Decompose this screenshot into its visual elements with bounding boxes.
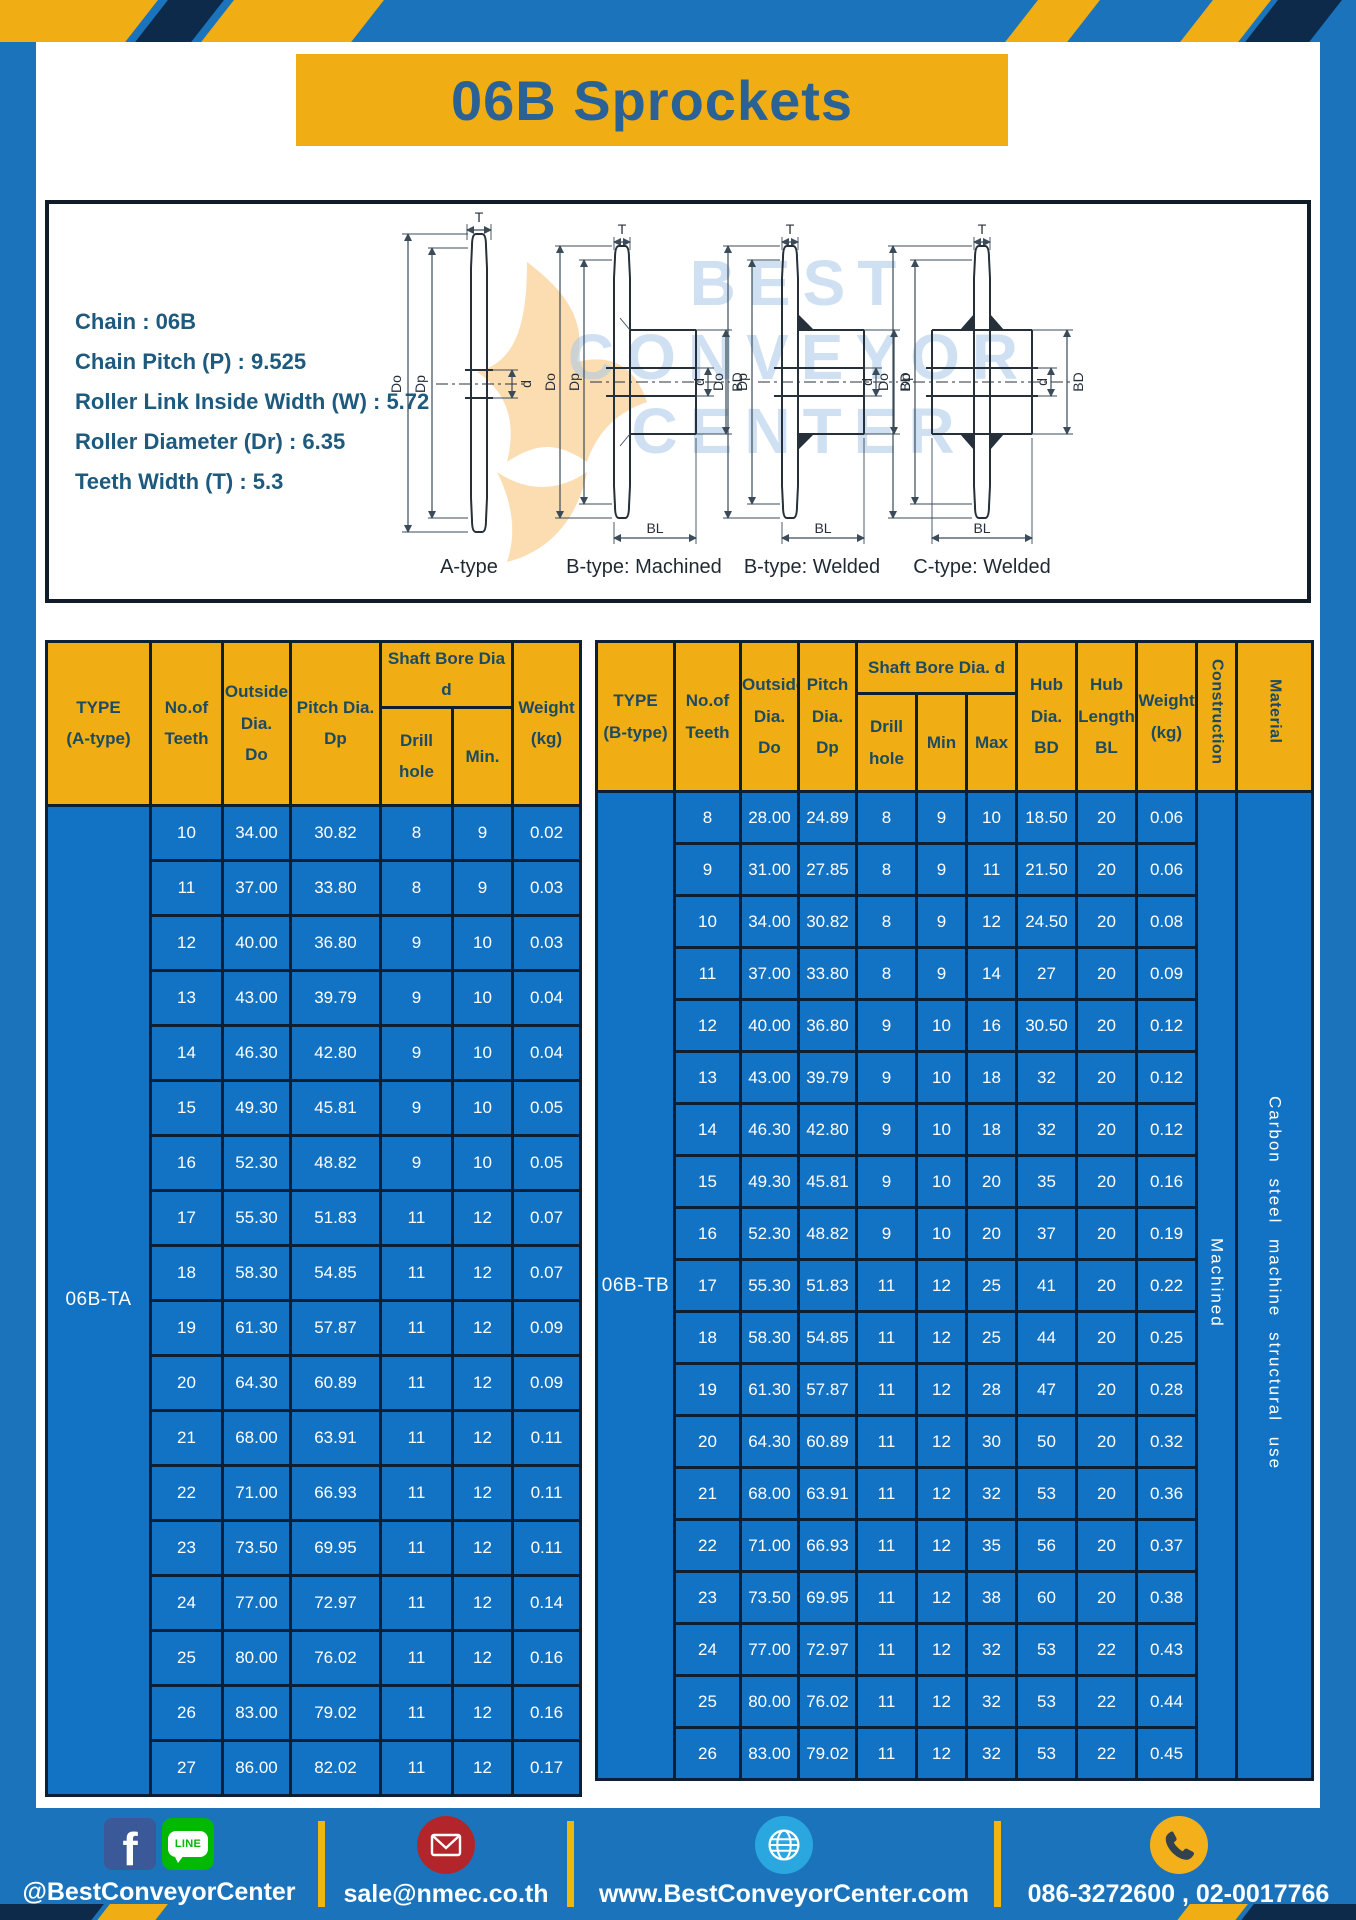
table-cell: 10 xyxy=(917,1052,967,1104)
dim-label-dp: Dp xyxy=(412,375,428,393)
table-cell: 60.89 xyxy=(291,1355,381,1410)
table-cell: 45.81 xyxy=(799,1156,857,1208)
table-cell: 12 xyxy=(917,1416,967,1468)
table-cell: 12 xyxy=(453,1190,513,1245)
header-type: TYPE (B-type) xyxy=(597,642,675,792)
table-b-type: TYPE (B-type) No.of Teeth Outside Dia. D… xyxy=(595,640,1314,1781)
table-cell: 0.07 xyxy=(513,1245,581,1300)
table-cell: 44 xyxy=(1017,1312,1077,1364)
table-cell: 10 xyxy=(453,1025,513,1080)
table-cell: 0.17 xyxy=(513,1740,581,1795)
table-cell: 26 xyxy=(675,1728,741,1780)
dim-label-t: T xyxy=(618,222,627,237)
table-cell: 8 xyxy=(857,844,917,896)
table-cell: 46.30 xyxy=(741,1104,799,1156)
chain-specs: Chain : 06B Chain Pitch (P) : 9.525 Roll… xyxy=(75,302,429,502)
type-label-cell: 06B-TA xyxy=(47,805,151,1795)
table-cell: 12 xyxy=(453,1410,513,1465)
table-cell: 15 xyxy=(675,1156,741,1208)
table-cell: 36.80 xyxy=(799,1000,857,1052)
table-cell: 11 xyxy=(857,1728,917,1780)
table-cell: 0.38 xyxy=(1137,1572,1197,1624)
vertical-text-cell: Carbon steel machine structural use xyxy=(1237,792,1313,1780)
table-cell: 11 xyxy=(857,1416,917,1468)
table-cell: 51.83 xyxy=(291,1190,381,1245)
table-cell: 50 xyxy=(1017,1416,1077,1468)
table-cell: 24.50 xyxy=(1017,896,1077,948)
table-cell: 77.00 xyxy=(223,1575,291,1630)
table-cell: 68.00 xyxy=(741,1468,799,1520)
table-cell: 36.80 xyxy=(291,915,381,970)
dim-label-d: d xyxy=(1034,378,1050,386)
table-cell: 12 xyxy=(917,1520,967,1572)
header-hub-dia: Hub Dia. BD xyxy=(1017,642,1077,792)
table-cell: 53 xyxy=(1017,1624,1077,1676)
header-drill-hole: Drill hole xyxy=(857,694,917,792)
table-cell: 12 xyxy=(151,915,223,970)
table-cell: 63.91 xyxy=(291,1410,381,1465)
header-outside-dia: Outside Dia. Do xyxy=(223,642,291,806)
table-cell: 0.11 xyxy=(513,1465,581,1520)
table-cell: 12 xyxy=(453,1465,513,1520)
header-max: Max xyxy=(967,694,1017,792)
table-cell: 12 xyxy=(917,1572,967,1624)
header-shaft-bore: Shaft Bore Dia. d xyxy=(857,642,1017,694)
table-cell: 28 xyxy=(967,1364,1017,1416)
drawing-label-c-welded: C-type: Welded xyxy=(874,556,1090,584)
table-cell: 0.28 xyxy=(1137,1364,1197,1416)
header-shaft-bore: Shaft Bore Dia d xyxy=(381,642,513,708)
table-a-type: TYPE (A-type) No.of Teeth Outside Dia. D… xyxy=(45,640,582,1797)
table-cell: 9 xyxy=(381,1135,453,1190)
dim-label-d: d xyxy=(691,378,707,386)
table-cell: 25 xyxy=(967,1260,1017,1312)
table-cell: 8 xyxy=(381,805,453,860)
table-cell: 8 xyxy=(675,792,741,844)
table-cell: 35 xyxy=(967,1520,1017,1572)
table-cell: 17 xyxy=(675,1260,741,1312)
table-cell: 0.09 xyxy=(513,1355,581,1410)
table-cell: 58.30 xyxy=(223,1245,291,1300)
table-cell: 69.95 xyxy=(799,1572,857,1624)
table-cell: 0.11 xyxy=(513,1410,581,1465)
table-cell: 31.00 xyxy=(741,844,799,896)
table-cell: 8 xyxy=(857,948,917,1000)
table-cell: 66.93 xyxy=(291,1465,381,1520)
table-cell: 22 xyxy=(1077,1676,1137,1728)
dim-label-bd: BD xyxy=(1070,372,1086,391)
table-cell: 12 xyxy=(917,1676,967,1728)
table-cell: 0.16 xyxy=(1137,1156,1197,1208)
table-cell: 39.79 xyxy=(799,1052,857,1104)
table-cell: 12 xyxy=(917,1728,967,1780)
table-cell: 0.16 xyxy=(513,1630,581,1685)
table-cell: 52.30 xyxy=(741,1208,799,1260)
table-cell: 14 xyxy=(675,1104,741,1156)
table-cell: 11 xyxy=(675,948,741,1000)
table-cell: 10 xyxy=(453,1080,513,1135)
drawing-label-a-type: A-type xyxy=(379,556,559,584)
table-cell: 53 xyxy=(1017,1676,1077,1728)
table-cell: 0.22 xyxy=(1137,1260,1197,1312)
header-drill-hole: Drill hole xyxy=(381,707,453,805)
table-cell: 14 xyxy=(151,1025,223,1080)
table-cell: 9 xyxy=(857,1000,917,1052)
table-cell: 18 xyxy=(967,1104,1017,1156)
table-cell: 40.00 xyxy=(223,915,291,970)
table-cell: 0.07 xyxy=(513,1190,581,1245)
table-b-body: 06B-TB828.0024.89891018.50200.06Machined… xyxy=(597,792,1313,1780)
c-type-welded-drawing: T Do Dp xyxy=(877,222,1087,557)
table-cell: 0.11 xyxy=(513,1520,581,1575)
table-cell: 0.12 xyxy=(1137,1104,1197,1156)
table-cell: 10 xyxy=(967,792,1017,844)
table-cell: 11 xyxy=(857,1676,917,1728)
table-cell: 27 xyxy=(1017,948,1077,1000)
table-cell: 24 xyxy=(151,1575,223,1630)
table-cell: 9 xyxy=(917,896,967,948)
header-weight: Weight (kg) xyxy=(513,642,581,806)
table-cell: 20 xyxy=(1077,1260,1137,1312)
table-cell: 20 xyxy=(1077,1156,1137,1208)
table-cell: 9 xyxy=(857,1208,917,1260)
table-cell: 20 xyxy=(675,1416,741,1468)
table-cell: 12 xyxy=(453,1685,513,1740)
table-cell: 60.89 xyxy=(799,1416,857,1468)
dim-label-d: d xyxy=(859,378,875,386)
table-cell: 21.50 xyxy=(1017,844,1077,896)
header-construction-text: Construction xyxy=(1202,659,1232,765)
dim-label-do: Do xyxy=(388,375,404,393)
table-cell: 20 xyxy=(967,1156,1017,1208)
table-cell: 25 xyxy=(675,1676,741,1728)
table-cell: 69.95 xyxy=(291,1520,381,1575)
table-cell: 9 xyxy=(381,915,453,970)
table-cell: 76.02 xyxy=(291,1630,381,1685)
table-cell: 11 xyxy=(381,1630,453,1685)
table-cell: 9 xyxy=(675,844,741,896)
table-cell: 25 xyxy=(151,1630,223,1685)
table-cell: 11 xyxy=(857,1364,917,1416)
table-cell: 12 xyxy=(453,1300,513,1355)
table-cell: 53 xyxy=(1017,1468,1077,1520)
table-cell: 43.00 xyxy=(223,970,291,1025)
drawing-panel: BEST CONVEYOR CENTER Chain : 06B Chain P… xyxy=(45,200,1311,603)
table-cell: 72.97 xyxy=(799,1624,857,1676)
table-cell: 42.80 xyxy=(291,1025,381,1080)
table-cell: 71.00 xyxy=(741,1520,799,1572)
table-cell: 9 xyxy=(381,1025,453,1080)
table-cell: 11 xyxy=(857,1572,917,1624)
table-cell: 17 xyxy=(151,1190,223,1245)
table-cell: 11 xyxy=(381,1190,453,1245)
table-cell: 19 xyxy=(675,1364,741,1416)
table-cell: 32 xyxy=(967,1728,1017,1780)
table-cell: 11 xyxy=(857,1624,917,1676)
table-cell: 12 xyxy=(453,1245,513,1300)
dim-label-do: Do xyxy=(877,373,891,391)
table-cell: 48.82 xyxy=(291,1135,381,1190)
table-cell: 20 xyxy=(1077,1208,1137,1260)
table-cell: 80.00 xyxy=(223,1630,291,1685)
table-cell: 26 xyxy=(151,1685,223,1740)
table-cell: 0.37 xyxy=(1137,1520,1197,1572)
table-cell: 10 xyxy=(453,915,513,970)
table-cell: 20 xyxy=(1077,948,1137,1000)
table-cell: 0.09 xyxy=(513,1300,581,1355)
table-cell: 10 xyxy=(917,1000,967,1052)
table-cell: 19 xyxy=(151,1300,223,1355)
table-cell: 54.85 xyxy=(291,1245,381,1300)
table-cell: 83.00 xyxy=(741,1728,799,1780)
table-cell: 37.00 xyxy=(223,860,291,915)
table-cell: 64.30 xyxy=(223,1355,291,1410)
hazard-stripe xyxy=(993,0,1110,42)
type-label-cell: 06B-TB xyxy=(597,792,675,1780)
table-cell: 12 xyxy=(917,1260,967,1312)
table-cell: 27 xyxy=(151,1740,223,1795)
table-cell: 18 xyxy=(967,1052,1017,1104)
header-weight: Weight (kg) xyxy=(1137,642,1197,792)
table-cell: 10 xyxy=(917,1208,967,1260)
table-cell: 24.89 xyxy=(799,792,857,844)
footer-social-handle: @BestConveyorCenter xyxy=(22,1878,295,1907)
table-cell: 54.85 xyxy=(799,1312,857,1364)
header-pitch-dia: Pitch Dia. Dp xyxy=(799,642,857,792)
table-cell: 30.82 xyxy=(799,896,857,948)
table-cell: 32 xyxy=(1017,1104,1077,1156)
header-material-text: Material xyxy=(1260,679,1290,743)
table-cell: 12 xyxy=(453,1740,513,1795)
table-cell: 15 xyxy=(151,1080,223,1135)
table-cell: 0.04 xyxy=(513,970,581,1025)
table-cell: 18 xyxy=(675,1312,741,1364)
table-cell: 42.80 xyxy=(799,1104,857,1156)
table-cell: 11 xyxy=(381,1355,453,1410)
table-cell: 9 xyxy=(453,805,513,860)
table-cell: 33.80 xyxy=(291,860,381,915)
table-cell: 43.00 xyxy=(741,1052,799,1104)
table-cell: 0.12 xyxy=(1137,1052,1197,1104)
table-cell: 61.30 xyxy=(223,1300,291,1355)
table-cell: 49.30 xyxy=(741,1156,799,1208)
table-cell: 12 xyxy=(453,1630,513,1685)
table-b-header: TYPE (B-type) No.of Teeth Outside Dia. D… xyxy=(597,642,1313,792)
table-cell: 58.30 xyxy=(741,1312,799,1364)
spec-chain: Chain : 06B xyxy=(75,302,429,342)
table-cell: 12 xyxy=(675,1000,741,1052)
table-cell: 11 xyxy=(381,1245,453,1300)
dim-label-dp: Dp xyxy=(734,373,750,391)
table-cell: 10 xyxy=(917,1156,967,1208)
table-cell: 48.82 xyxy=(799,1208,857,1260)
header-outside-dia: Outside Dia. Do xyxy=(741,642,799,792)
table-cell: 0.12 xyxy=(1137,1000,1197,1052)
header-material: Material xyxy=(1237,642,1313,792)
table-cell: 9 xyxy=(453,860,513,915)
table-cell: 8 xyxy=(857,792,917,844)
table-cell: 79.02 xyxy=(291,1685,381,1740)
table-cell: 40.00 xyxy=(741,1000,799,1052)
table-cell: 0.43 xyxy=(1137,1624,1197,1676)
table-cell: 11 xyxy=(857,1520,917,1572)
table-cell: 16 xyxy=(675,1208,741,1260)
dim-label-do: Do xyxy=(544,373,558,391)
table-cell: 0.05 xyxy=(513,1135,581,1190)
table-cell: 10 xyxy=(917,1104,967,1156)
title-banner: 06B Sprockets xyxy=(296,54,1008,146)
header-teeth: No.of Teeth xyxy=(675,642,741,792)
table-cell: 0.05 xyxy=(513,1080,581,1135)
table-cell: 55.30 xyxy=(741,1260,799,1312)
footer-divider xyxy=(318,1821,325,1907)
table-cell: 10 xyxy=(453,1135,513,1190)
header-min: Min xyxy=(917,694,967,792)
table-cell: 77.00 xyxy=(741,1624,799,1676)
table-cell: 30 xyxy=(967,1416,1017,1468)
table-cell: 9 xyxy=(917,948,967,1000)
dim-label-t: T xyxy=(475,209,484,225)
table-cell: 20 xyxy=(1077,1364,1137,1416)
table-cell: 0.06 xyxy=(1137,844,1197,896)
table-cell: 11 xyxy=(857,1468,917,1520)
facebook-letter: f xyxy=(122,1828,137,1870)
table-cell: 11 xyxy=(967,844,1017,896)
table-cell: 12 xyxy=(453,1520,513,1575)
table-cell: 10 xyxy=(151,805,223,860)
dim-label-dp: Dp xyxy=(566,373,582,391)
table-cell: 11 xyxy=(151,860,223,915)
line-icon: LINE xyxy=(162,1818,214,1870)
table-cell: 71.00 xyxy=(223,1465,291,1520)
table-cell: 39.79 xyxy=(291,970,381,1025)
table-cell: 46.30 xyxy=(223,1025,291,1080)
table-cell: 32 xyxy=(967,1624,1017,1676)
table-cell: 20 xyxy=(1077,896,1137,948)
table-cell: 11 xyxy=(381,1410,453,1465)
spec-chain-pitch: Chain Pitch (P) : 9.525 xyxy=(75,342,429,382)
table-cell: 35 xyxy=(1017,1156,1077,1208)
table-cell: 12 xyxy=(453,1575,513,1630)
table-cell: 22 xyxy=(1077,1624,1137,1676)
table-cell: 10 xyxy=(675,896,741,948)
spec-roller-width: Roller Link Inside Width (W) : 5.72 xyxy=(75,382,429,422)
page-title: 06B Sprockets xyxy=(451,68,853,133)
table-cell: 34.00 xyxy=(741,896,799,948)
table-cell: 53 xyxy=(1017,1728,1077,1780)
table-cell: 68.00 xyxy=(223,1410,291,1465)
table-cell: 79.02 xyxy=(799,1728,857,1780)
table-cell: 56 xyxy=(1017,1520,1077,1572)
table-cell: 57.87 xyxy=(291,1300,381,1355)
table-cell: 60 xyxy=(1017,1572,1077,1624)
table-cell: 8 xyxy=(381,860,453,915)
table-cell: 22 xyxy=(1077,1728,1137,1780)
table-cell: 76.02 xyxy=(799,1676,857,1728)
table-cell: 80.00 xyxy=(741,1676,799,1728)
table-cell: 11 xyxy=(381,1740,453,1795)
table-cell: 20 xyxy=(151,1355,223,1410)
dim-label-t: T xyxy=(978,222,987,237)
table-cell: 18.50 xyxy=(1017,792,1077,844)
table-cell: 0.44 xyxy=(1137,1676,1197,1728)
table-cell: 33.80 xyxy=(799,948,857,1000)
a-type-drawing: T Do Dp d xyxy=(384,208,554,563)
table-cell: 73.50 xyxy=(223,1520,291,1575)
dim-label-bl: BL xyxy=(646,520,663,536)
table-cell: 32 xyxy=(967,1676,1017,1728)
table-row: 06B-TB828.0024.89891018.50200.06Machined… xyxy=(597,792,1313,844)
table-cell: 25 xyxy=(967,1312,1017,1364)
table-cell: 20 xyxy=(1077,792,1137,844)
email-icon xyxy=(417,1816,475,1874)
vertical-text: Carbon steel machine structural use xyxy=(1265,1096,1285,1470)
dim-label-bl: BL xyxy=(973,520,990,536)
table-cell: 11 xyxy=(381,1465,453,1520)
table-cell: 11 xyxy=(381,1575,453,1630)
dim-label-t: T xyxy=(786,222,795,237)
table-cell: 73.50 xyxy=(741,1572,799,1624)
line-text: LINE xyxy=(175,1838,201,1850)
table-cell: 20 xyxy=(1077,1000,1137,1052)
table-cell: 52.30 xyxy=(223,1135,291,1190)
table-cell: 64.30 xyxy=(741,1416,799,1468)
table-cell: 49.30 xyxy=(223,1080,291,1135)
table-cell: 27.85 xyxy=(799,844,857,896)
table-cell: 9 xyxy=(917,844,967,896)
header-hub-length: Hub Length BL xyxy=(1077,642,1137,792)
table-cell: 0.04 xyxy=(513,1025,581,1080)
table-cell: 13 xyxy=(151,970,223,1025)
table-cell: 12 xyxy=(917,1312,967,1364)
table-cell: 12 xyxy=(917,1468,967,1520)
spec-teeth-width: Teeth Width (T) : 5.3 xyxy=(75,462,429,502)
header-construction: Construction xyxy=(1197,642,1237,792)
table-cell: 20 xyxy=(1077,1104,1137,1156)
table-cell: 22 xyxy=(675,1520,741,1572)
dim-label-do: Do xyxy=(712,373,726,391)
top-hazard-band xyxy=(0,0,1356,42)
table-cell: 21 xyxy=(675,1468,741,1520)
dim-label-dp: Dp xyxy=(897,373,913,391)
table-cell: 0.16 xyxy=(513,1685,581,1740)
table-cell: 45.81 xyxy=(291,1080,381,1135)
table-cell: 63.91 xyxy=(799,1468,857,1520)
table-cell: 9 xyxy=(857,1052,917,1104)
dim-label-bl: BL xyxy=(814,520,831,536)
table-cell: 66.93 xyxy=(799,1520,857,1572)
table-cell: 9 xyxy=(857,1104,917,1156)
table-cell: 86.00 xyxy=(223,1740,291,1795)
table-cell: 11 xyxy=(857,1312,917,1364)
table-cell: 32 xyxy=(967,1468,1017,1520)
table-cell: 0.03 xyxy=(513,860,581,915)
table-cell: 20 xyxy=(1077,1468,1137,1520)
table-cell: 30.50 xyxy=(1017,1000,1077,1052)
table-cell: 24 xyxy=(675,1624,741,1676)
table-cell: 20 xyxy=(1077,844,1137,896)
table-cell: 0.08 xyxy=(1137,896,1197,948)
table-cell: 21 xyxy=(151,1410,223,1465)
facebook-icon: f xyxy=(104,1818,156,1870)
table-cell: 9 xyxy=(381,970,453,1025)
table-cell: 11 xyxy=(381,1520,453,1575)
table-cell: 16 xyxy=(967,1000,1017,1052)
table-cell: 37 xyxy=(1017,1208,1077,1260)
table-a-body: 06B-TA1034.0030.82890.021137.0033.80890.… xyxy=(47,805,581,1795)
table-cell: 0.25 xyxy=(1137,1312,1197,1364)
table-cell: 0.32 xyxy=(1137,1416,1197,1468)
